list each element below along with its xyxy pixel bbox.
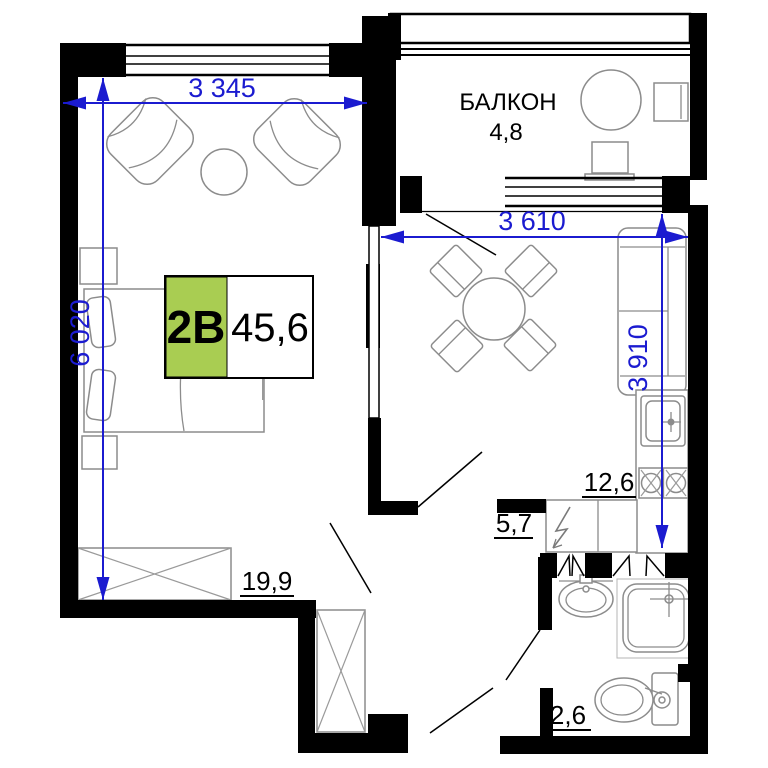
dimension-top-width: 3 345: [63, 73, 367, 110]
living-door-leaf: [330, 523, 371, 593]
armchair: [248, 93, 347, 192]
tag-type: 2В: [167, 301, 226, 353]
balcony-chair: [654, 83, 688, 121]
room-area-hall: 5,7: [496, 508, 532, 538]
utility-closet: [546, 500, 637, 552]
toilet: [595, 673, 678, 725]
bathroom-sink: [559, 575, 613, 617]
room-area-wc: 2,6: [550, 700, 586, 730]
dim-kitchen-width-label: 3 610: [498, 206, 566, 236]
room-area-living: 19,9: [242, 566, 293, 596]
dim-left-label: 6 020: [65, 299, 95, 367]
nightstand: [80, 248, 117, 284]
entry-closet: [317, 610, 365, 732]
balcony-table: [581, 70, 641, 130]
balcony-parapet: [391, 14, 690, 55]
room-area-balcony: 4,8: [489, 119, 522, 146]
floor-plan-page: БАЛКОН 4,8 19,9 12,6 5,7 2,6 2В 45,6 3 3…: [0, 0, 768, 768]
room-area-kitchen: 12,6: [584, 467, 635, 497]
armchair: [101, 92, 200, 191]
partition-wall: [369, 226, 379, 418]
wc-door-leaf: [506, 630, 540, 680]
shower: [617, 579, 694, 658]
entry-door-leaf: [430, 688, 493, 733]
dining-table: [463, 278, 525, 340]
living-room-window: [126, 45, 329, 75]
dim-top-label: 3 345: [188, 73, 256, 103]
nightstand: [82, 436, 117, 469]
dim-kitchen-height-label: 3 910: [623, 324, 653, 392]
room-label-balcony: БАЛКОН: [459, 89, 556, 116]
tag-area: 45,6: [231, 306, 309, 350]
coffee-table: [201, 149, 247, 195]
balcony-stool: [585, 142, 634, 180]
kitchen-door-leaf: [418, 452, 482, 507]
floor-plan-svg: БАЛКОН 4,8 19,9 12,6 5,7 2,6 2В 45,6 3 3…: [0, 0, 768, 768]
stove: [639, 468, 688, 498]
